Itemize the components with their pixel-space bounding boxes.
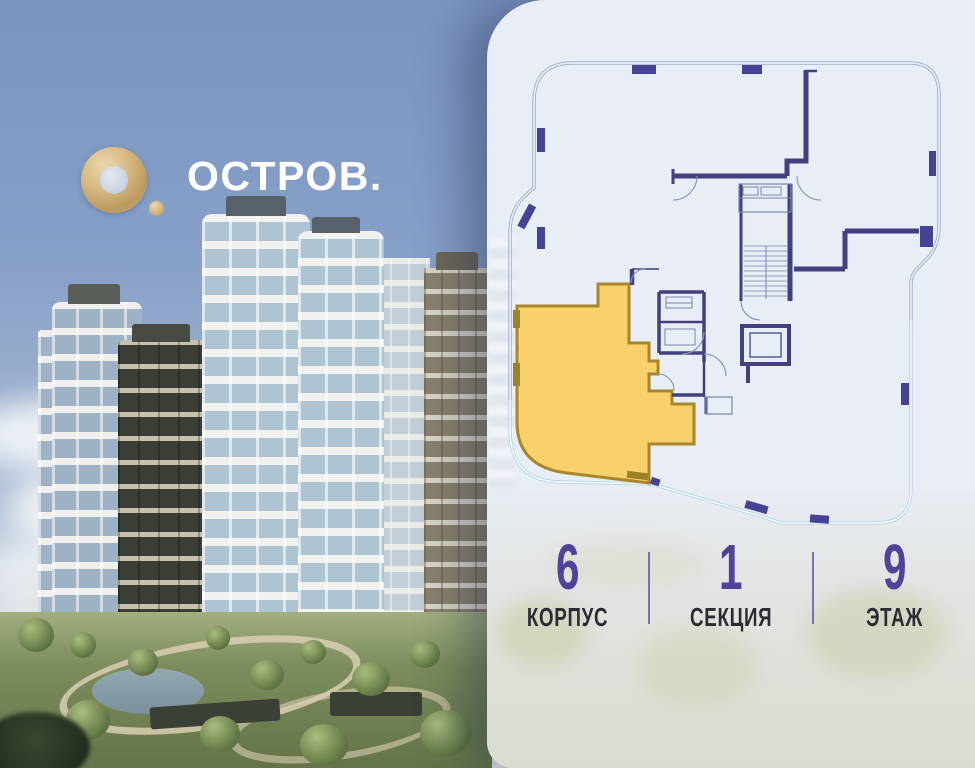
highlighted-apartment[interactable] (517, 284, 694, 483)
stat-building: 6 КОРПУС (487, 538, 648, 638)
apartment-info-panel: 6 КОРПУС 1 СЕКЦИЯ 9 ЭТАЖ (487, 0, 975, 768)
stat-floor-label: ЭТАЖ (866, 602, 923, 633)
tree (70, 632, 96, 658)
stat-section: 1 СЕКЦИЯ (650, 538, 811, 638)
tree (352, 662, 390, 696)
brand-name: ОСТРОВ. (187, 156, 383, 197)
stat-building-value: 6 (556, 538, 579, 597)
tower-roof (68, 284, 120, 304)
tower-roof (436, 252, 478, 270)
tower-roof (312, 217, 360, 233)
stat-section-label: СЕКЦИЯ (690, 602, 772, 633)
tree (300, 724, 348, 766)
floorplan-svg (487, 0, 975, 768)
tree (300, 640, 326, 664)
stat-building-label: КОРПУС (527, 602, 608, 633)
tree (410, 640, 440, 668)
stats-divider (812, 552, 814, 624)
logo-ring-icon (81, 147, 147, 213)
apartment-stats: 6 КОРПУС 1 СЕКЦИЯ 9 ЭТАЖ (487, 538, 975, 638)
stairwell (739, 184, 791, 299)
logo-dot-icon (149, 201, 164, 216)
stats-divider (648, 552, 650, 624)
stat-floor: 9 ЭТАЖ (814, 538, 975, 638)
stat-floor-value: 9 (883, 538, 906, 597)
elevator (742, 326, 789, 364)
page: ОСТРОВ. (0, 0, 975, 768)
stat-section-value: 1 (719, 538, 742, 597)
tower-roof (132, 324, 190, 342)
tree (128, 648, 158, 676)
tree (18, 618, 54, 652)
tower-roof (226, 196, 286, 216)
tree (200, 716, 240, 752)
tree (206, 626, 230, 650)
pergola (330, 692, 422, 716)
tree (420, 710, 472, 756)
tree (250, 660, 284, 690)
